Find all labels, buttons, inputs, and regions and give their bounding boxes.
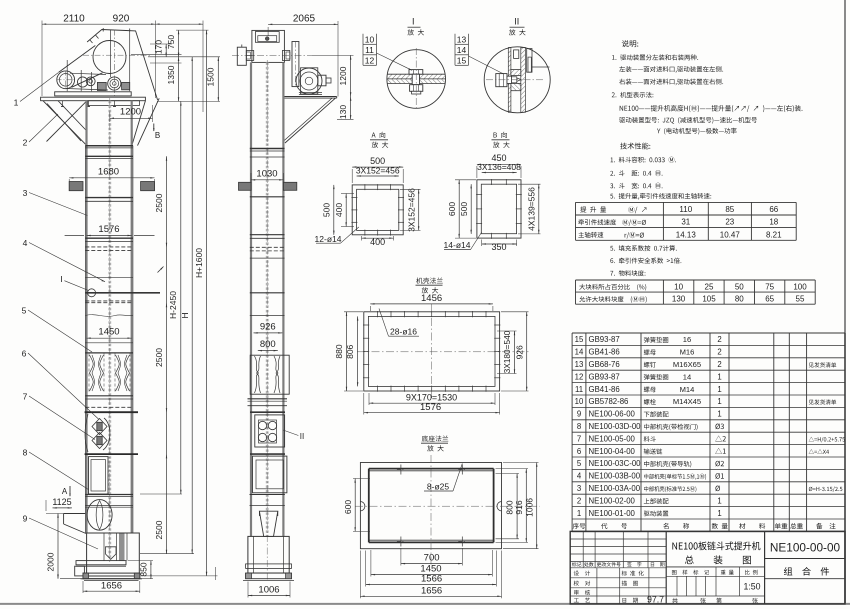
svg-text:1576: 1576: [420, 402, 441, 413]
svg-text:18: 18: [769, 218, 778, 227]
svg-text:1006: 1006: [258, 585, 279, 596]
svg-text:806: 806: [345, 344, 355, 358]
svg-text:I: I: [412, 17, 415, 27]
svg-text:GB41-86: GB41-86: [589, 385, 620, 394]
svg-text:4X139=556: 4X139=556: [526, 187, 536, 231]
svg-text:NE100-03B-00: NE100-03B-00: [589, 472, 641, 481]
svg-text:B: B: [155, 131, 160, 140]
svg-text:3X180=540: 3X180=540: [502, 330, 512, 373]
svg-text:7: 7: [23, 392, 28, 402]
svg-text:700: 700: [424, 553, 440, 564]
svg-text:12-ø14: 12-ø14: [315, 234, 342, 244]
svg-text:920: 920: [113, 14, 130, 25]
svg-text:31: 31: [681, 218, 690, 227]
svg-text:350: 350: [491, 242, 506, 252]
svg-text:2500: 2500: [154, 348, 164, 367]
svg-text:GB41-86: GB41-86: [589, 348, 620, 357]
svg-text:66: 66: [769, 205, 778, 214]
svg-text:10: 10: [674, 282, 683, 291]
svg-text:75: 75: [765, 282, 774, 291]
svg-text:I: I: [60, 274, 62, 284]
svg-text:500: 500: [370, 156, 385, 166]
svg-text:NE100-04-00: NE100-04-00: [589, 447, 636, 456]
svg-text:10.47: 10.47: [720, 230, 741, 239]
svg-text:M14X45: M14X45: [673, 397, 701, 406]
svg-text:14-ø14: 14-ø14: [444, 240, 471, 250]
svg-text:15: 15: [575, 335, 584, 344]
svg-text:926: 926: [260, 322, 276, 333]
svg-text:II: II: [514, 17, 519, 27]
svg-text:2110: 2110: [63, 14, 85, 25]
svg-text:14: 14: [683, 372, 691, 381]
svg-text:400: 400: [370, 237, 385, 247]
svg-text:880: 880: [334, 344, 344, 358]
svg-text:916: 916: [514, 500, 524, 514]
svg-text:1: 1: [717, 509, 721, 518]
svg-text:GB93-87: GB93-87: [589, 335, 620, 344]
svg-text:H: H: [180, 312, 190, 318]
svg-text:NE100-02-00: NE100-02-00: [589, 496, 636, 505]
svg-text:600: 600: [343, 500, 353, 514]
svg-text:80: 80: [735, 295, 744, 304]
svg-text:170: 170: [154, 40, 164, 54]
svg-text:M16X65: M16X65: [673, 360, 701, 369]
svg-text:II: II: [300, 432, 304, 441]
svg-text:500: 500: [321, 203, 331, 217]
svg-text:14: 14: [575, 348, 584, 357]
svg-text:H-2450: H-2450: [168, 291, 178, 319]
svg-text:23: 23: [725, 218, 734, 227]
svg-text:5: 5: [22, 306, 27, 316]
svg-text:6: 6: [577, 447, 581, 456]
svg-text:1: 1: [14, 98, 19, 108]
svg-text:800: 800: [260, 339, 276, 350]
svg-text:NE100-03C-00: NE100-03C-00: [589, 459, 642, 468]
svg-text:3X152=456: 3X152=456: [406, 188, 416, 232]
svg-text:2500: 2500: [154, 520, 164, 539]
svg-text:1456: 1456: [421, 293, 442, 304]
svg-text:25: 25: [705, 282, 714, 291]
svg-text:M14: M14: [680, 385, 695, 394]
svg-text:GB93-87: GB93-87: [589, 372, 620, 381]
svg-text:105: 105: [702, 295, 716, 304]
svg-text:5: 5: [577, 459, 582, 468]
svg-text:15: 15: [457, 56, 467, 66]
svg-text:1:50: 1:50: [743, 582, 760, 592]
svg-text:926: 926: [514, 345, 524, 359]
svg-text:110: 110: [679, 205, 692, 214]
svg-text:3X152=456: 3X152=456: [356, 166, 400, 176]
svg-text:8.21: 8.21: [766, 230, 782, 239]
svg-text:NE100-03A-00: NE100-03A-00: [589, 484, 641, 493]
svg-text:11: 11: [575, 385, 583, 394]
svg-text:97.7: 97.7: [647, 595, 664, 605]
svg-text:8: 8: [577, 422, 581, 431]
svg-text:8: 8: [23, 448, 28, 458]
svg-text:130: 130: [338, 105, 348, 119]
svg-text:4: 4: [577, 472, 582, 481]
svg-text:9X170=1530: 9X170=1530: [406, 392, 457, 402]
svg-text:600: 600: [447, 202, 457, 216]
svg-text:1: 1: [717, 410, 721, 419]
svg-text:9: 9: [23, 514, 28, 524]
svg-text:1: 1: [577, 509, 581, 518]
svg-text:2: 2: [717, 348, 721, 357]
svg-text:2500: 2500: [154, 193, 164, 212]
svg-text:3X136=408: 3X136=408: [477, 162, 521, 172]
svg-text:65: 65: [765, 295, 774, 304]
svg-text:2: 2: [577, 496, 581, 505]
svg-text:2: 2: [717, 360, 721, 369]
svg-text:2065: 2065: [293, 14, 316, 25]
svg-text:1125: 1125: [52, 497, 71, 507]
svg-text:M16: M16: [680, 348, 695, 357]
svg-text:1006: 1006: [524, 498, 534, 517]
svg-text:400: 400: [334, 203, 344, 217]
svg-text:130: 130: [672, 295, 686, 304]
svg-text:NE100-06-00: NE100-06-00: [589, 410, 636, 419]
svg-text:1656: 1656: [421, 585, 442, 596]
svg-text:100: 100: [793, 282, 807, 291]
svg-text:13: 13: [457, 35, 467, 45]
svg-text:NE100-00-00: NE100-00-00: [770, 541, 841, 555]
svg-text:9: 9: [577, 410, 581, 419]
svg-text:16: 16: [683, 335, 691, 344]
svg-text:NE100-05-00: NE100-05-00: [589, 434, 636, 443]
svg-text:A: A: [62, 487, 68, 496]
svg-text:1: 1: [717, 372, 721, 381]
svg-text:12: 12: [365, 56, 375, 66]
svg-text:1450: 1450: [98, 327, 119, 338]
svg-text:2: 2: [23, 138, 28, 148]
svg-text:3: 3: [23, 188, 28, 198]
svg-text:1680: 1680: [98, 167, 119, 178]
svg-text:1656: 1656: [101, 581, 122, 592]
svg-text:2000: 2000: [46, 552, 56, 571]
svg-text:13: 13: [575, 360, 584, 369]
svg-text:1576: 1576: [98, 224, 119, 235]
svg-text:850: 850: [139, 562, 149, 576]
svg-text:H+1600: H+1600: [194, 248, 204, 278]
svg-text:10: 10: [365, 35, 375, 45]
svg-text:1: 1: [717, 496, 721, 505]
svg-text:50: 50: [735, 282, 744, 291]
svg-text:1200: 1200: [120, 107, 141, 118]
svg-text:85: 85: [725, 205, 734, 214]
svg-text:14: 14: [457, 45, 467, 55]
svg-text:1350: 1350: [166, 65, 176, 84]
svg-text:11: 11: [365, 45, 374, 55]
svg-text:28-ø16: 28-ø16: [390, 327, 417, 337]
svg-text:8-ø25: 8-ø25: [427, 482, 449, 492]
svg-text:55: 55: [796, 295, 805, 304]
svg-text:750: 750: [166, 35, 176, 49]
svg-text:1030: 1030: [256, 169, 277, 180]
svg-text:14.13: 14.13: [676, 230, 697, 239]
svg-text:12: 12: [575, 372, 584, 381]
svg-text:500: 500: [459, 202, 469, 216]
svg-text:NE100-03D-00: NE100-03D-00: [589, 422, 642, 431]
svg-text:6: 6: [22, 349, 27, 359]
svg-text:4: 4: [23, 238, 28, 248]
svg-text:NE100-01-00: NE100-01-00: [589, 509, 636, 518]
svg-text:1566: 1566: [421, 574, 442, 585]
svg-text:1200: 1200: [338, 66, 348, 85]
svg-text:10: 10: [575, 397, 584, 406]
svg-text:7: 7: [577, 434, 581, 443]
svg-text:1: 1: [717, 397, 721, 406]
svg-text:2: 2: [717, 335, 721, 344]
svg-text:GB5782-86: GB5782-86: [589, 397, 629, 406]
svg-text:GB68-76: GB68-76: [589, 360, 620, 369]
svg-text:1: 1: [717, 385, 721, 394]
svg-text:3: 3: [577, 484, 581, 493]
